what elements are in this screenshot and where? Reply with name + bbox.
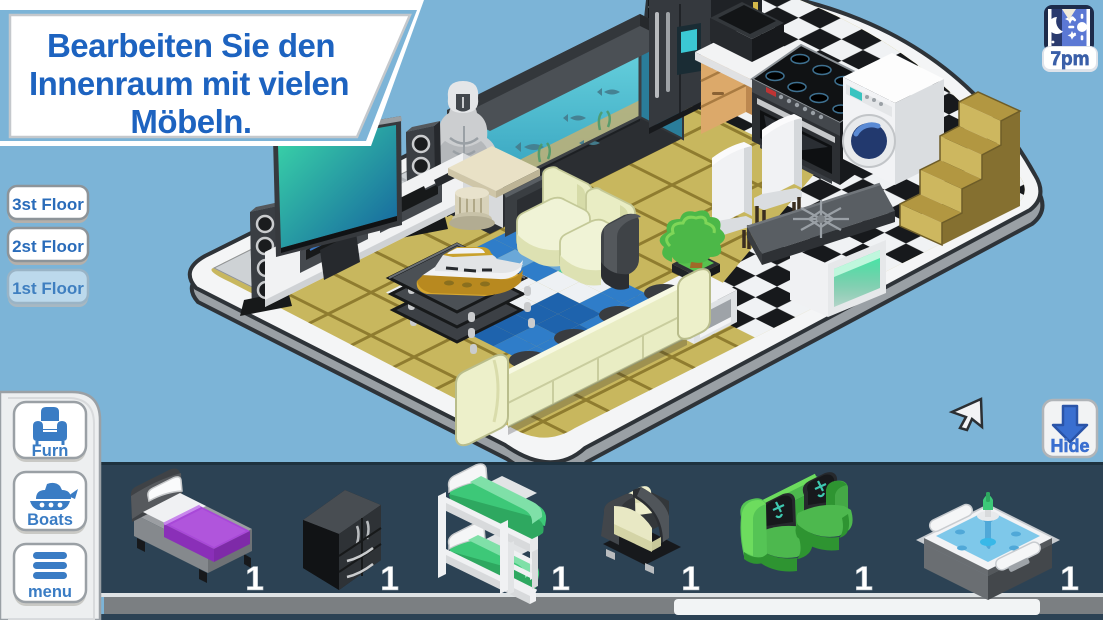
svg-text:Möbeln.: Möbeln. <box>130 103 251 140</box>
svg-text:1: 1 <box>551 560 570 598</box>
svg-text:menu: menu <box>28 583 72 601</box>
svg-text:Furn: Furn <box>32 442 69 460</box>
svg-text:2st Floor: 2st Floor <box>12 237 84 256</box>
svg-text:1: 1 <box>380 560 399 598</box>
svg-text:1: 1 <box>1060 560 1079 598</box>
svg-text:Hide: Hide <box>1050 436 1089 456</box>
svg-text:1: 1 <box>245 560 264 598</box>
svg-text:Innenraum mit vielen: Innenraum mit vielen <box>29 65 349 102</box>
svg-text:1: 1 <box>854 560 873 598</box>
svg-text:1st Floor: 1st Floor <box>12 279 84 298</box>
svg-text:1: 1 <box>681 560 700 598</box>
svg-text:3st Floor: 3st Floor <box>12 195 84 214</box>
svg-text:Boats: Boats <box>27 511 73 529</box>
svg-text:Bearbeiten Sie den: Bearbeiten Sie den <box>47 27 335 64</box>
svg-text:7pm: 7pm <box>1050 49 1089 70</box>
